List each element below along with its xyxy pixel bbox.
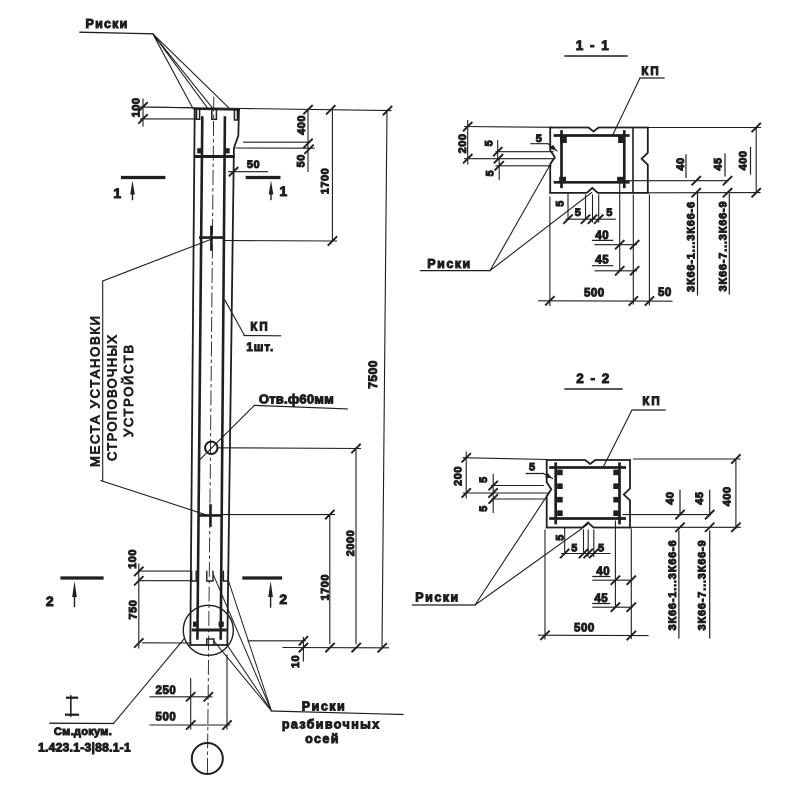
svg-text:500: 500: [156, 712, 177, 724]
svg-text:КП: КП: [250, 322, 269, 334]
svg-text:КП: КП: [642, 396, 661, 408]
svg-text:УСТРОЙСТВ: УСТРОЙСТВ: [121, 345, 136, 437]
svg-text:200: 200: [457, 134, 469, 154]
svg-text:5: 5: [478, 476, 490, 483]
svg-text:1 - 1: 1 - 1: [576, 38, 611, 53]
svg-text:1: 1: [113, 185, 121, 201]
svg-text:45: 45: [713, 157, 725, 170]
svg-text:3К66-7...3К66-9: 3К66-7...3К66-9: [718, 201, 730, 292]
svg-text:5: 5: [598, 543, 605, 555]
svg-text:5: 5: [606, 207, 613, 219]
svg-text:осей: осей: [305, 732, 340, 746]
svg-text:5: 5: [478, 505, 490, 512]
svg-text:50: 50: [247, 159, 260, 171]
svg-text:1шт.: 1шт.: [246, 342, 274, 354]
svg-text:2: 2: [279, 591, 287, 607]
svg-text:40: 40: [665, 491, 677, 504]
svg-text:Риски: Риски: [86, 17, 129, 31]
svg-text:1700: 1700: [320, 168, 332, 194]
svg-text:разбивочных: разбивочных: [282, 718, 381, 732]
svg-text:50: 50: [296, 154, 308, 167]
svg-text:7500: 7500: [366, 360, 380, 389]
svg-text:750: 750: [128, 600, 140, 620]
svg-text:400: 400: [722, 486, 734, 506]
svg-text:5: 5: [485, 170, 497, 177]
svg-text:МЕСТА УСТАНОВКИ: МЕСТА УСТАНОВКИ: [88, 316, 103, 467]
svg-text:5: 5: [554, 534, 566, 541]
svg-text:400: 400: [738, 151, 750, 171]
svg-text:45: 45: [694, 491, 706, 504]
svg-text:Риски: Риски: [415, 591, 459, 605]
svg-text:2 - 2: 2 - 2: [576, 371, 611, 386]
svg-text:40: 40: [675, 157, 687, 170]
svg-text:Отв.ф60мм: Отв.ф60мм: [259, 392, 334, 407]
svg-text:100: 100: [127, 549, 139, 569]
svg-text:1: 1: [279, 183, 287, 199]
svg-text:200: 200: [453, 466, 465, 486]
svg-text:Риски: Риски: [427, 257, 471, 271]
svg-text:500: 500: [584, 288, 605, 300]
svg-text:3К66-7...3К66-9: 3К66-7...3К66-9: [697, 540, 709, 631]
svg-text:5: 5: [575, 207, 582, 219]
svg-text:45: 45: [595, 255, 609, 267]
svg-text:3К66-1...3К66-6: 3К66-1...3К66-6: [686, 201, 698, 292]
svg-text:250: 250: [156, 685, 177, 697]
svg-text:2: 2: [46, 593, 54, 609]
svg-text:СТРОПОВОЧНЫХ: СТРОПОВОЧНЫХ: [105, 335, 120, 461]
svg-text:5: 5: [529, 462, 536, 474]
svg-text:5: 5: [554, 200, 566, 207]
svg-text:1700: 1700: [320, 574, 332, 600]
svg-text:3К66-1...3К66-6: 3К66-1...3К66-6: [667, 540, 679, 631]
svg-text:5: 5: [571, 543, 578, 555]
svg-text:50: 50: [658, 287, 672, 299]
svg-text:2000: 2000: [345, 530, 357, 556]
svg-text:КП: КП: [641, 66, 660, 78]
svg-text:10: 10: [290, 655, 302, 668]
svg-text:См.докум.: См.докум.: [54, 726, 112, 738]
svg-text:500: 500: [574, 623, 595, 635]
svg-text:1.423.1-3|88.1-1: 1.423.1-3|88.1-1: [38, 741, 131, 755]
svg-text:5: 5: [484, 140, 496, 147]
svg-text:400: 400: [296, 115, 308, 135]
